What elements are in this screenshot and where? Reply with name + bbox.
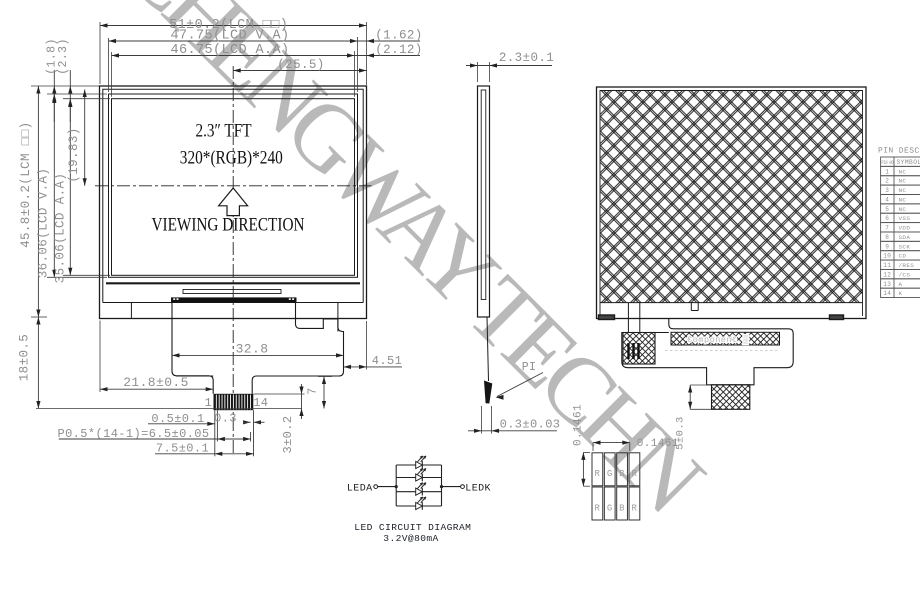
svg-text:0.3±0.03: 0.3±0.03 xyxy=(500,417,561,431)
svg-text:35.06(LCD A.A): 35.06(LCD A.A) xyxy=(54,173,68,284)
svg-text:G: G xyxy=(607,503,613,513)
svg-text:18±0.5: 18±0.5 xyxy=(18,334,32,381)
svg-text:K: K xyxy=(899,290,903,297)
svg-text:/RES: /RES xyxy=(899,262,915,269)
svg-text:47.75(LCD V.A): 47.75(LCD V.A) xyxy=(170,29,289,44)
svg-text:7.5±0.1: 7.5±0.1 xyxy=(156,441,209,455)
svg-text:32.8: 32.8 xyxy=(236,342,269,357)
svg-text:(1.62): (1.62) xyxy=(375,29,422,43)
svg-text:320*(RGB)*240: 320*(RGB)*240 xyxy=(180,148,283,169)
svg-text:3±0.2: 3±0.2 xyxy=(281,415,295,453)
svg-text:2.3″ TFT: 2.3″ TFT xyxy=(196,121,252,142)
svg-text:(2.3): (2.3) xyxy=(57,38,70,75)
svg-text:14: 14 xyxy=(883,290,891,297)
svg-text:3.2V@80mA: 3.2V@80mA xyxy=(383,533,438,544)
svg-text:NC: NC xyxy=(899,196,907,203)
svg-text:LEDA: LEDA xyxy=(347,484,373,495)
svg-text:B: B xyxy=(619,503,625,513)
svg-text:PIN DESCRIPTION: PIN DESCRIPTION xyxy=(878,147,920,156)
svg-text:1: 1 xyxy=(204,396,212,410)
svg-text:4.51: 4.51 xyxy=(372,354,402,368)
svg-text:G: G xyxy=(607,469,613,479)
svg-text:B: B xyxy=(619,469,625,479)
svg-text:4: 4 xyxy=(885,196,889,203)
svg-text:46.75(LCD A.A): 46.75(LCD A.A) xyxy=(170,43,289,58)
svg-text:/CS: /CS xyxy=(899,271,911,278)
svg-text:R: R xyxy=(594,469,600,479)
svg-text:7: 7 xyxy=(306,387,320,395)
svg-text:(19.83): (19.83) xyxy=(67,127,81,182)
svg-text:VDD: VDD xyxy=(899,225,911,232)
svg-text:8: 8 xyxy=(885,234,889,241)
svg-text:VIEWING DIRECTION: VIEWING DIRECTION xyxy=(152,214,305,235)
svg-text:SYMBOL: SYMBOL xyxy=(897,159,920,166)
svg-text:NC: NC xyxy=(899,178,907,185)
svg-text:(2.12): (2.12) xyxy=(375,43,422,57)
svg-text:PIN NO: PIN NO xyxy=(882,159,894,166)
svg-text:2.3±0.1: 2.3±0.1 xyxy=(499,51,554,65)
svg-text:7: 7 xyxy=(885,225,889,232)
svg-text:21.8±0.5: 21.8±0.5 xyxy=(123,375,189,390)
svg-text:36.06(LCD V.A): 36.06(LCD V.A) xyxy=(36,168,50,279)
svg-text:10: 10 xyxy=(883,253,891,260)
svg-text:SCK: SCK xyxy=(899,243,911,250)
svg-text:NC: NC xyxy=(899,168,907,175)
svg-text:0.3: 0.3 xyxy=(214,411,237,425)
svg-text:NC: NC xyxy=(899,206,907,213)
svg-text:13: 13 xyxy=(883,281,891,288)
svg-text:3: 3 xyxy=(885,187,889,194)
svg-text:6: 6 xyxy=(885,215,889,222)
svg-text:SDA: SDA xyxy=(899,234,911,241)
svg-text:R: R xyxy=(632,469,638,479)
svg-text:0.1461: 0.1461 xyxy=(573,404,585,446)
svg-text:14: 14 xyxy=(253,396,268,410)
svg-text:NC: NC xyxy=(899,187,907,194)
svg-text:PI: PI xyxy=(522,361,537,374)
svg-text:R: R xyxy=(594,503,600,513)
svg-text:2: 2 xyxy=(885,178,889,185)
svg-text:Component ▒: Component ▒ xyxy=(687,334,749,345)
svg-text:LED CIRCUIT DIAGRAM: LED CIRCUIT DIAGRAM xyxy=(354,522,471,533)
svg-text:CD: CD xyxy=(899,253,907,260)
svg-text:1: 1 xyxy=(885,168,889,175)
svg-text:R: R xyxy=(632,503,638,513)
svg-text:9: 9 xyxy=(885,243,889,250)
svg-text:45.8±0.2(LCM □□): 45.8±0.2(LCM □□) xyxy=(19,121,33,247)
svg-text:11: 11 xyxy=(883,262,891,269)
svg-text:12: 12 xyxy=(883,271,891,278)
svg-text:A: A xyxy=(899,281,903,288)
svg-text:5: 5 xyxy=(885,206,889,213)
svg-text:0.1461: 0.1461 xyxy=(637,438,679,450)
svg-text:VSS: VSS xyxy=(899,215,911,222)
svg-text:LEDK: LEDK xyxy=(465,484,491,495)
svg-text:(25.5): (25.5) xyxy=(277,58,324,72)
